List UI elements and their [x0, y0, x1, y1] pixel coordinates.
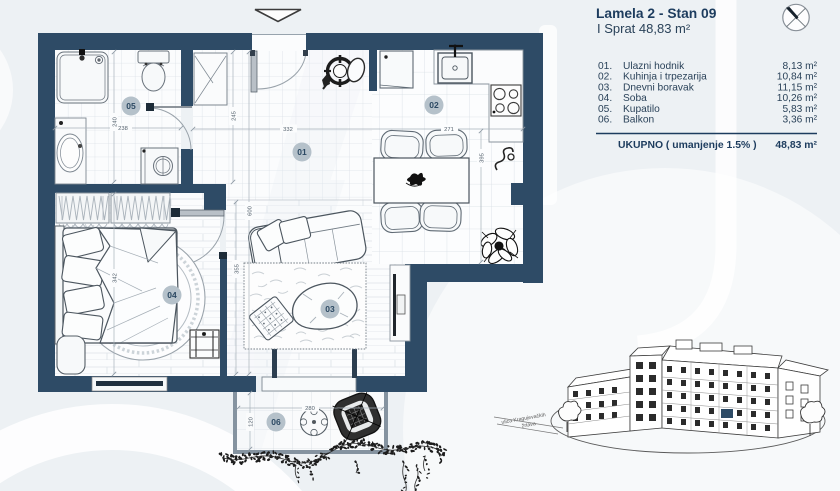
svg-text:05: 05 [126, 101, 136, 111]
svg-text:245: 245 [232, 111, 238, 121]
svg-text:355: 355 [235, 264, 241, 274]
svg-text:120: 120 [249, 417, 255, 427]
svg-text:UKUPNO ( umanjenje 1.5% ): UKUPNO ( umanjenje 1.5% ) [618, 140, 757, 151]
svg-text:5,83 m²: 5,83 m² [782, 104, 817, 115]
svg-text:Ulazni hodnik: Ulazni hodnik [623, 61, 685, 72]
svg-text:02: 02 [429, 100, 439, 110]
svg-text:Kupatilo: Kupatilo [623, 104, 660, 115]
svg-text:395: 395 [480, 153, 486, 163]
svg-text:8,13 m²: 8,13 m² [782, 61, 817, 72]
svg-text:03.: 03. [598, 82, 612, 93]
svg-text:3,36 m²: 3,36 m² [782, 115, 817, 126]
svg-text:10,84 m²: 10,84 m² [777, 72, 818, 83]
svg-text:Balkon: Balkon [623, 115, 654, 126]
svg-text:I Sprat 48,83 m²: I Sprat 48,83 m² [597, 21, 691, 36]
svg-text:Kuhinja i trpezarija: Kuhinja i trpezarija [623, 72, 707, 83]
svg-text:04.: 04. [598, 93, 612, 104]
svg-text:600: 600 [248, 206, 254, 216]
svg-text:Soba: Soba [623, 93, 647, 104]
svg-text:03: 03 [325, 304, 335, 314]
svg-text:01.: 01. [598, 61, 612, 72]
svg-text:342: 342 [113, 273, 119, 283]
svg-text:271: 271 [444, 127, 454, 133]
svg-text:11,15 m²: 11,15 m² [778, 82, 818, 93]
svg-text:332: 332 [283, 127, 293, 133]
svg-text:05.: 05. [598, 104, 612, 115]
svg-text:238: 238 [118, 126, 128, 132]
svg-text:06.: 06. [598, 115, 612, 126]
svg-text:10,26 m²: 10,26 m² [777, 93, 818, 104]
svg-text:04: 04 [167, 290, 177, 300]
svg-text:48,83 m²: 48,83 m² [775, 140, 817, 151]
svg-text:Lamela 2 - Stan 09: Lamela 2 - Stan 09 [596, 6, 717, 21]
svg-text:06: 06 [271, 417, 281, 427]
svg-text:02.: 02. [598, 72, 612, 83]
svg-text:Dnevni boravak: Dnevni boravak [623, 82, 695, 93]
svg-text:240: 240 [113, 117, 119, 127]
svg-text:280: 280 [305, 406, 315, 412]
svg-text:01: 01 [297, 147, 307, 157]
